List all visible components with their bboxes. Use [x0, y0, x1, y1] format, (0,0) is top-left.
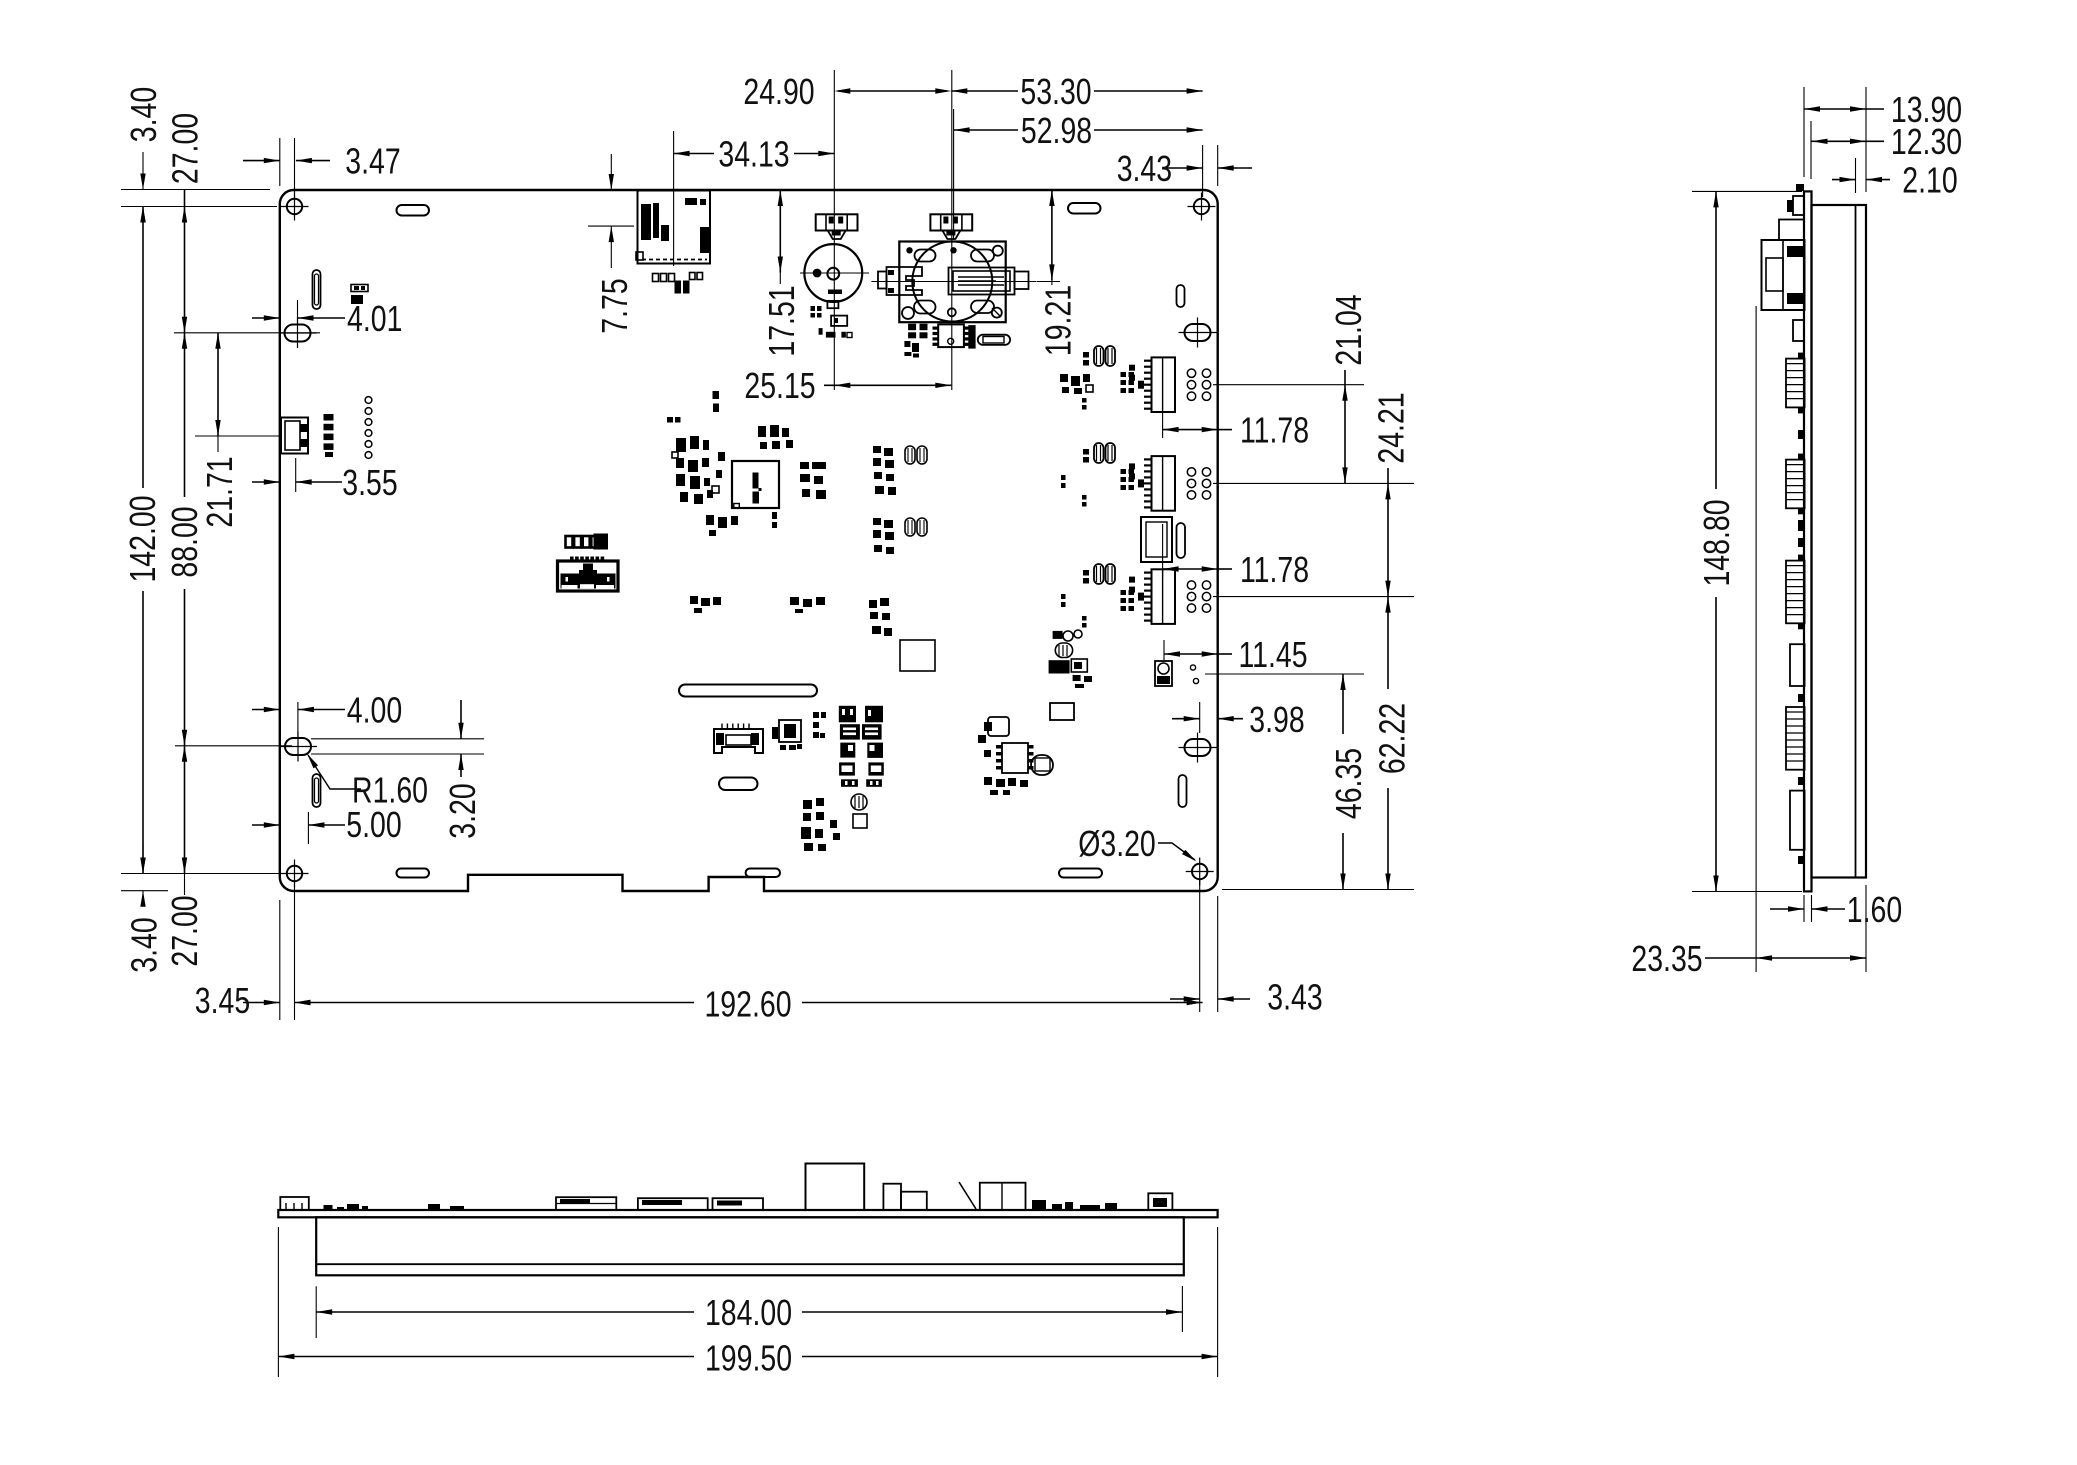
svg-text:199.50: 199.50 — [705, 1337, 792, 1378]
svg-text:21.71: 21.71 — [198, 456, 239, 527]
svg-text:184.00: 184.00 — [705, 1291, 792, 1332]
svg-text:23.35: 23.35 — [1631, 937, 1702, 978]
svg-text:21.04: 21.04 — [1327, 294, 1368, 365]
svg-text:53.30: 53.30 — [1020, 70, 1091, 111]
svg-text:11.78: 11.78 — [1240, 409, 1309, 450]
svg-text:3.45: 3.45 — [195, 979, 250, 1020]
svg-text:3.43: 3.43 — [1117, 147, 1172, 188]
svg-text:2.10: 2.10 — [1902, 159, 1957, 200]
svg-text:5.00: 5.00 — [346, 803, 401, 844]
svg-text:4.01: 4.01 — [347, 297, 402, 338]
svg-text:192.60: 192.60 — [704, 983, 791, 1024]
svg-text:3.55: 3.55 — [342, 461, 397, 502]
svg-text:24.90: 24.90 — [743, 70, 814, 111]
svg-text:11.78: 11.78 — [1240, 548, 1309, 589]
svg-text:12.30: 12.30 — [1891, 121, 1962, 162]
svg-text:27.00: 27.00 — [164, 113, 205, 184]
svg-text:52.98: 52.98 — [1021, 109, 1092, 150]
svg-text:11.45: 11.45 — [1238, 633, 1307, 674]
svg-text:3.40: 3.40 — [122, 87, 163, 142]
svg-text:25.15: 25.15 — [744, 365, 815, 406]
svg-text:34.13: 34.13 — [718, 133, 789, 174]
svg-text:24.21: 24.21 — [1370, 392, 1411, 463]
svg-text:46.35: 46.35 — [1327, 748, 1368, 819]
svg-text:3.98: 3.98 — [1249, 698, 1304, 739]
svg-text:62.22: 62.22 — [1371, 703, 1412, 774]
svg-text:4.00: 4.00 — [347, 689, 402, 730]
svg-text:1.60: 1.60 — [1847, 888, 1902, 929]
svg-text:148.80: 148.80 — [1695, 499, 1736, 586]
svg-text:3.47: 3.47 — [345, 140, 400, 181]
svg-text:27.00: 27.00 — [163, 895, 204, 966]
svg-text:3.43: 3.43 — [1267, 976, 1322, 1017]
svg-text:Ø3.20: Ø3.20 — [1078, 822, 1156, 863]
svg-text:142.00: 142.00 — [121, 495, 162, 582]
svg-text:19.21: 19.21 — [1037, 285, 1078, 356]
svg-text:3.40: 3.40 — [123, 917, 164, 972]
svg-text:3.20: 3.20 — [441, 783, 482, 838]
svg-text:17.51: 17.51 — [760, 285, 801, 356]
svg-text:7.75: 7.75 — [593, 278, 634, 333]
